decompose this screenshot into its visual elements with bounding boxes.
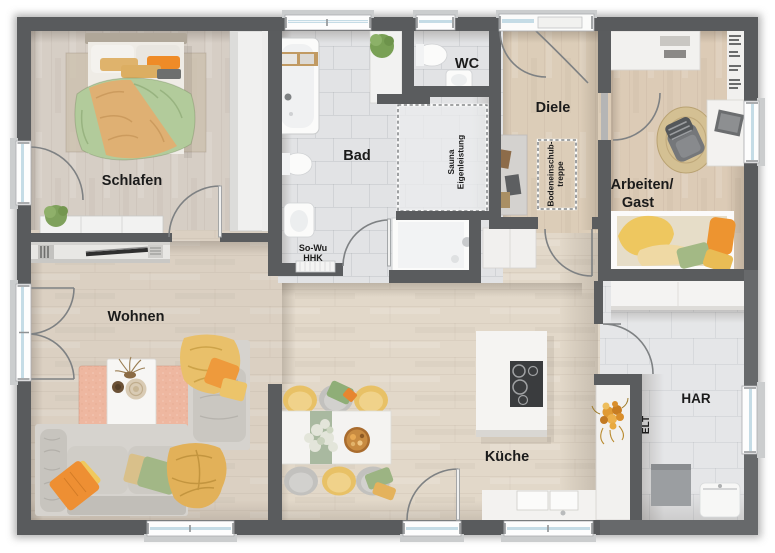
svg-text:Arbeiten/: Arbeiten/: [611, 177, 674, 193]
svg-text:Wohnen: Wohnen: [108, 309, 165, 325]
svg-text:Schlafen: Schlafen: [102, 173, 162, 189]
svg-text:Bodeneinschub-: Bodeneinschub-: [546, 141, 556, 206]
svg-text:HHK: HHK: [303, 253, 323, 263]
svg-text:WC: WC: [455, 56, 480, 72]
svg-text:Sauna: Sauna: [446, 149, 456, 174]
svg-text:ELT: ELT: [641, 416, 652, 434]
svg-text:Gast: Gast: [622, 195, 654, 211]
svg-text:Diele: Diele: [536, 100, 571, 116]
svg-text:So-Wu: So-Wu: [299, 243, 327, 253]
svg-text:Eigenleistung: Eigenleistung: [456, 135, 466, 189]
svg-text:HAR: HAR: [681, 391, 710, 406]
svg-text:Küche: Küche: [485, 449, 529, 465]
svg-text:treppe: treppe: [555, 161, 565, 187]
svg-text:Bad: Bad: [343, 148, 370, 164]
